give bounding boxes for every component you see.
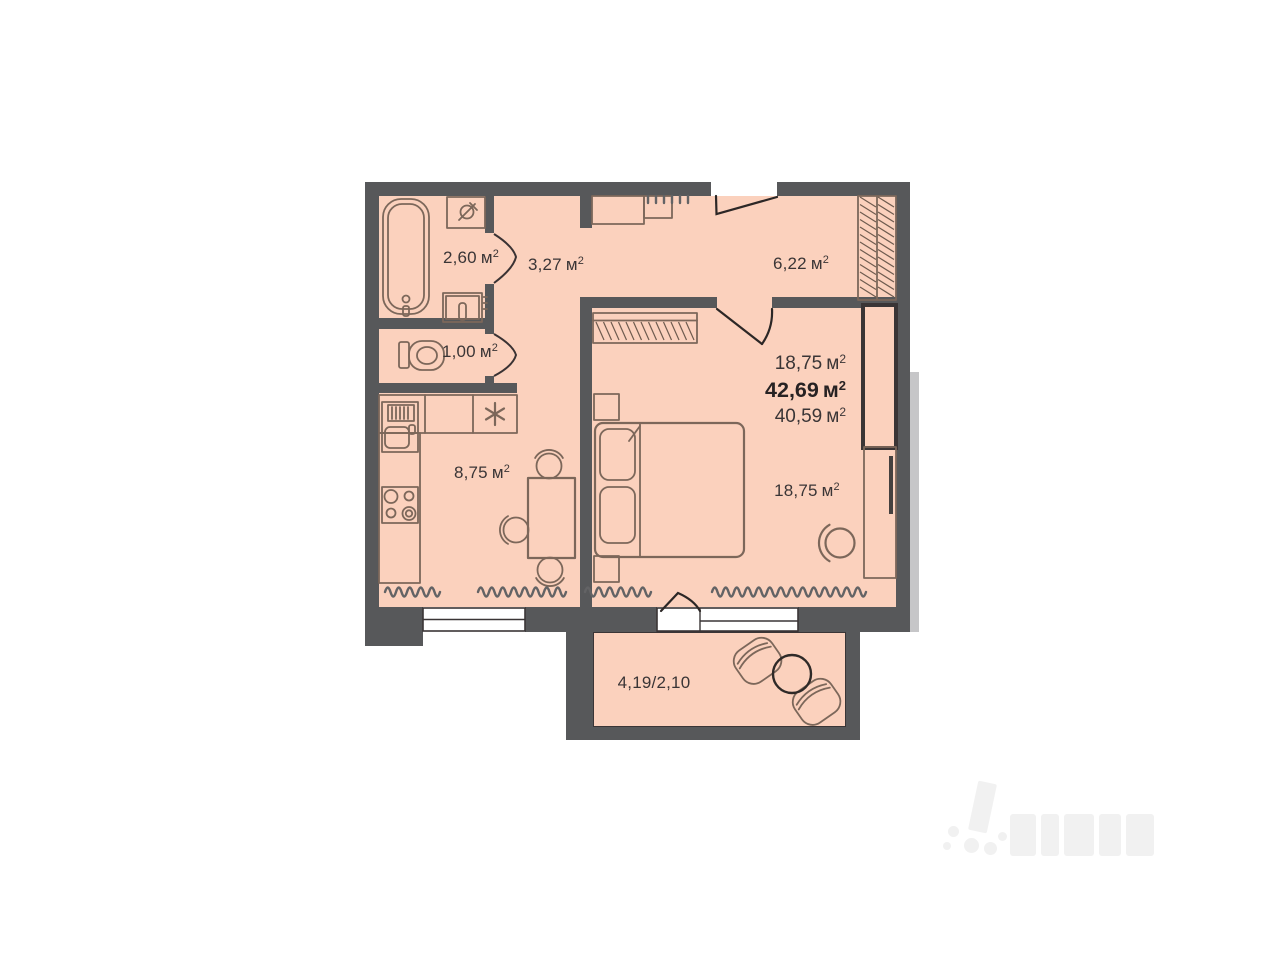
apartment-summary: 18,75м2 42,69м2 40,59м2 (690, 351, 846, 430)
room-label-living-room: 18,75м2 (774, 481, 840, 501)
wall-shadow-band (910, 372, 919, 632)
floor-plan: 2,60м2 3,27м2 6,22м2 1,00м2 8,75м2 18,75… (0, 0, 1280, 964)
kitchen-window (423, 608, 525, 631)
summary-additional-area: 40,59м2 (690, 404, 846, 430)
summary-total-area: 42,69м2 (690, 377, 846, 404)
room-label-kitchen: 8,75м2 (454, 463, 510, 483)
room-label-hall: 3,27м2 (528, 255, 584, 275)
built-in-closet (863, 305, 896, 448)
room-label-bathroom: 2,60м2 (443, 248, 499, 268)
watermark (942, 778, 1162, 864)
watermark-logo (968, 781, 997, 834)
room-label-wc: 1,00м2 (442, 342, 498, 362)
room-label-entrance-hall: 6,22м2 (773, 254, 829, 274)
room-label-balcony: 4,19/2,10 (618, 673, 691, 693)
summary-living-area: 18,75м2 (690, 351, 846, 377)
tv-on-desk (889, 456, 893, 514)
watermark-text-block (1010, 814, 1036, 856)
balcony-door-window (657, 608, 798, 631)
